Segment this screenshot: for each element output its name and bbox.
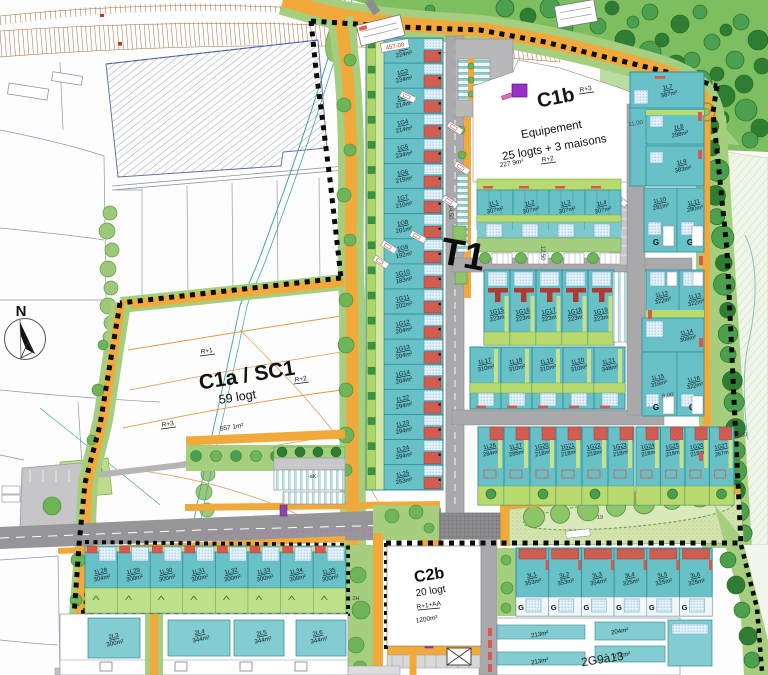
svg-text:-aK-: -aK- <box>308 474 319 480</box>
svg-text:N: N <box>16 303 27 320</box>
svg-text:G: G <box>551 603 557 612</box>
svg-text:G: G <box>653 238 659 247</box>
svg-text:2H: 2H <box>352 596 359 602</box>
svg-text:19: 19 <box>597 515 603 521</box>
svg-text:G: G <box>682 603 688 612</box>
svg-text:G: G <box>653 403 659 412</box>
svg-text:G: G <box>616 603 622 612</box>
svg-text:G: G <box>649 603 655 612</box>
svg-text:G: G <box>518 603 524 612</box>
svg-text:14,50: 14,50 <box>447 204 453 220</box>
svg-text:T1: T1 <box>438 231 489 280</box>
svg-text:12,50: 12,50 <box>539 245 545 261</box>
svg-text:G: G <box>583 603 589 612</box>
